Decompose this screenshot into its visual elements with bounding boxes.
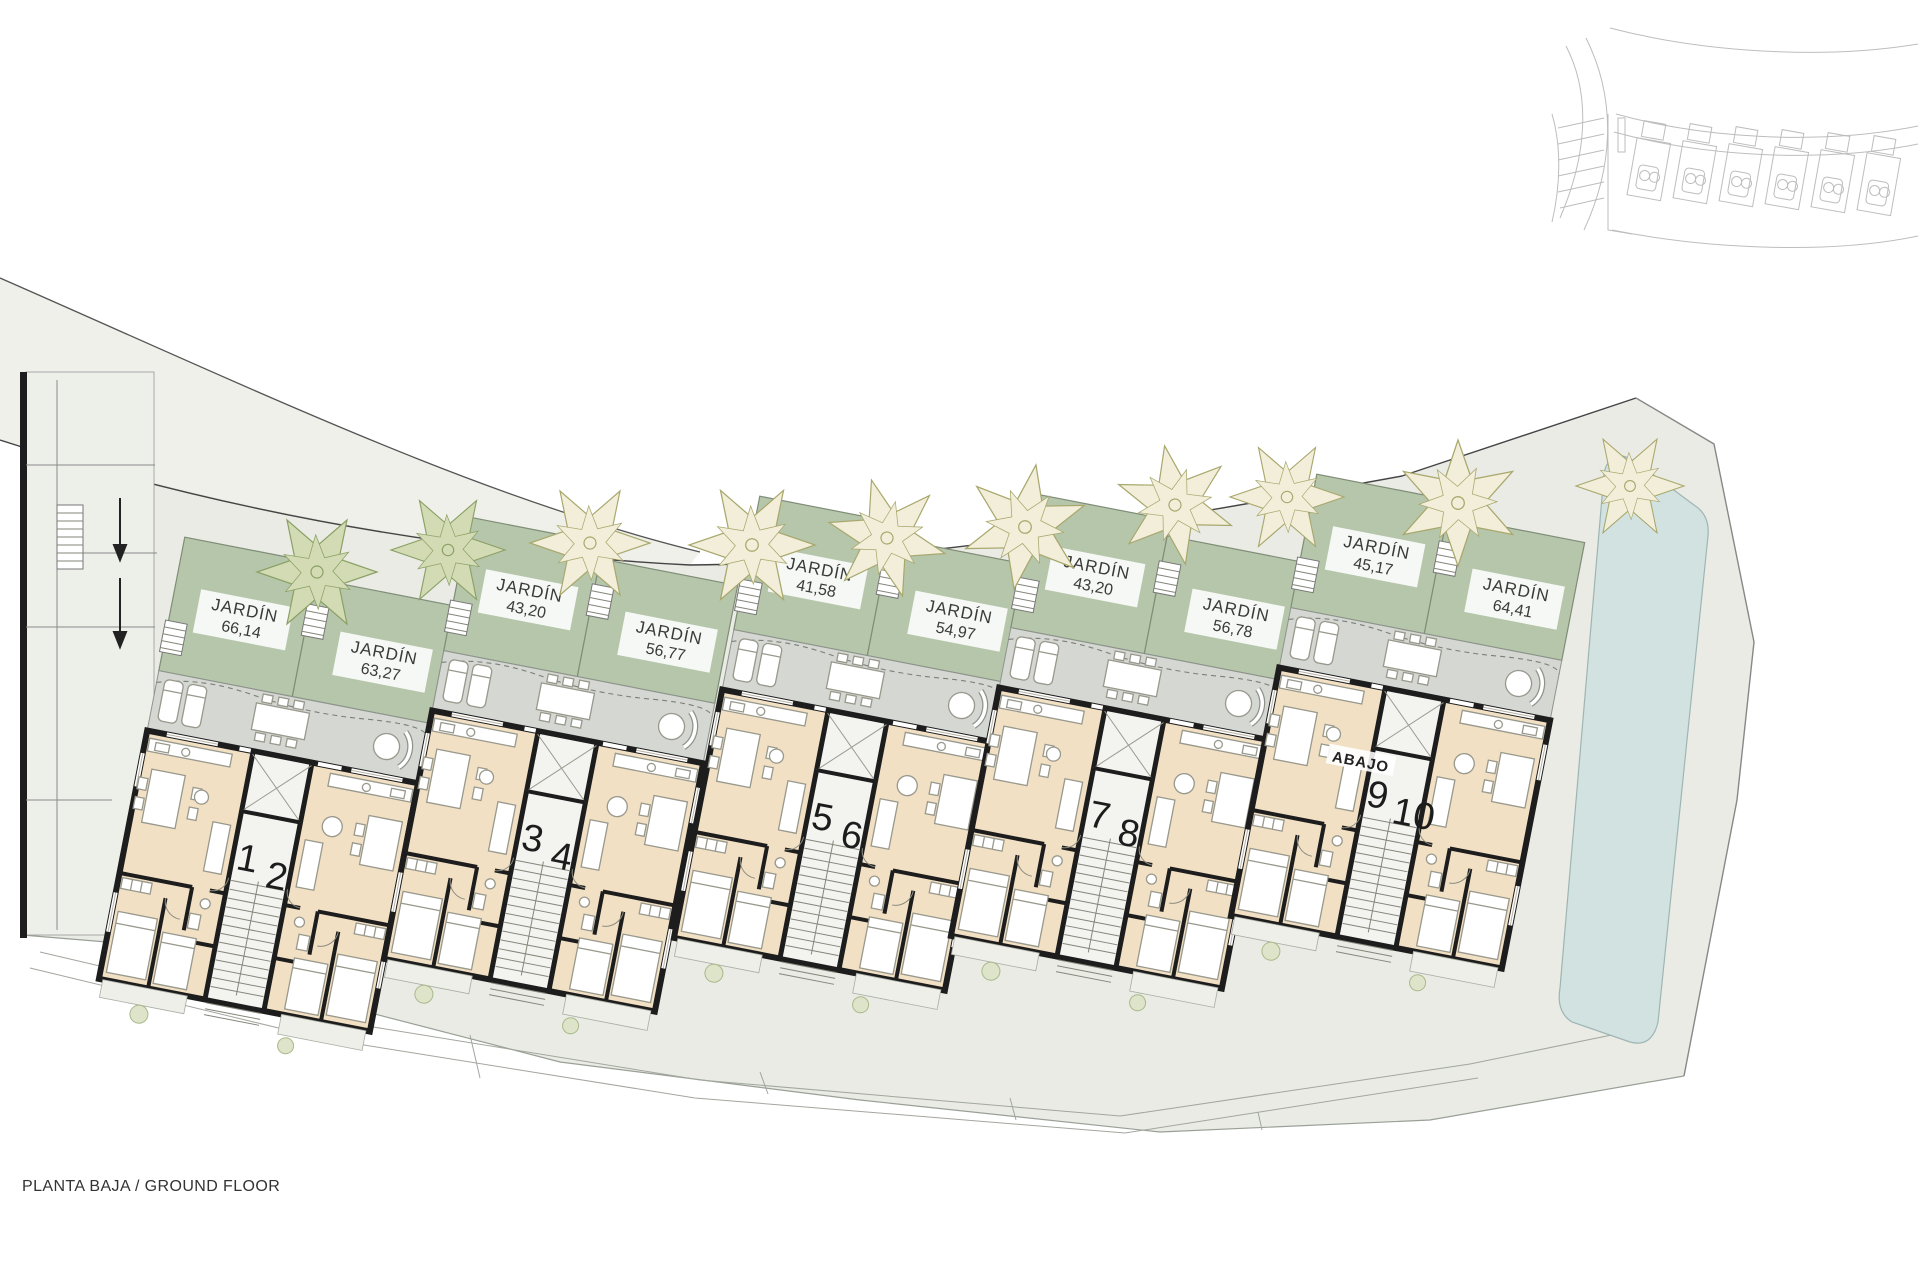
unit-number: 10: [1389, 790, 1439, 839]
page-title: PLANTA BAJA / GROUND FLOOR: [22, 1178, 280, 1196]
site-map-inset: [1552, 28, 1918, 247]
site-plan-drawing: JARDÍN 66,14 JARDÍN 63,27 1 2 JARDÍN 43,…: [0, 0, 1920, 1280]
floor-plan-canvas: JARDÍN 66,14 JARDÍN 63,27 1 2 JARDÍN 43,…: [0, 0, 1920, 1280]
